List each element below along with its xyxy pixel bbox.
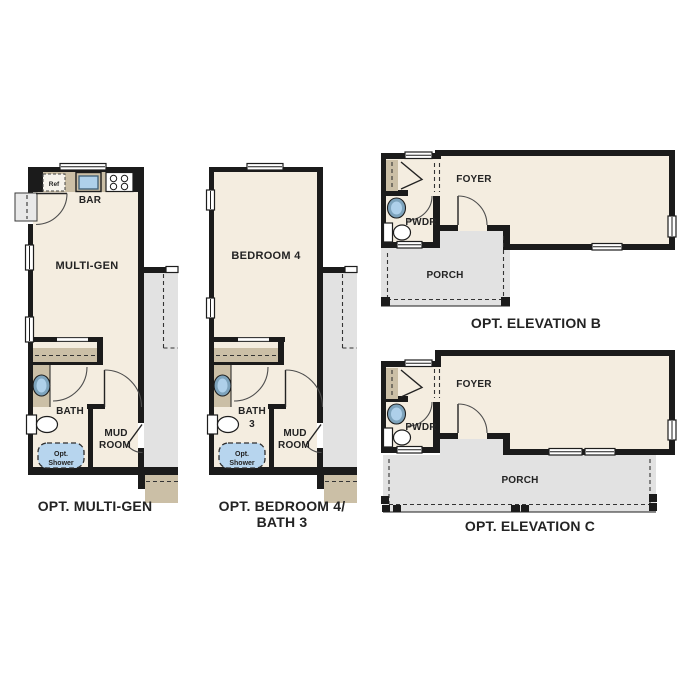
pwdr-label: PWDR [405, 217, 437, 228]
floorplan-canvas: Ref BAR MULTI-GEN BATH MUD ROOM Opt. Sho… [0, 0, 687, 687]
bath3-label: 3 [249, 419, 255, 430]
bar-sink [79, 176, 98, 189]
porch-label: PORCH [426, 270, 463, 281]
toilet-tank [384, 428, 393, 447]
toilet-bowl [37, 417, 58, 433]
plan-opt-multigen: Ref BAR MULTI-GEN BATH MUD ROOM Opt. Sho… [15, 164, 178, 515]
plan-opt-bedroom4: BEDROOM 4 BATH 3 MUD ROOM Opt. Shower OP… [207, 164, 358, 531]
porch-post [382, 505, 390, 512]
toilet-tank [208, 415, 218, 434]
opt-shower-label: Shower [229, 460, 255, 467]
opt-shower-label: Opt. [54, 451, 68, 458]
window [345, 267, 357, 273]
closet-shelf [214, 348, 278, 365]
closet-shelf [33, 348, 97, 365]
floorplan-sheet: Ref BAR MULTI-GEN BATH MUD ROOM Opt. Sho… [0, 0, 687, 687]
toilet-bowl [218, 417, 239, 433]
plan-opt-elevation-c: FOYER PWDR PORCH OPT. ELEVATION C [381, 350, 676, 534]
porch-post [511, 505, 520, 512]
opt-shower-label: Shower [48, 460, 74, 467]
ref-label: Ref [49, 181, 60, 188]
adjacent-area [144, 273, 178, 467]
bath3-label: BATH [238, 406, 266, 417]
porch-step [440, 231, 503, 248]
porch-post [501, 297, 510, 306]
plan-caption: OPT. BEDROOM 4/ [219, 498, 346, 514]
foyer-floor [437, 353, 673, 453]
window [166, 267, 178, 273]
plan-caption: OPT. ELEVATION C [465, 518, 595, 534]
porch-post [649, 503, 657, 511]
plan-caption: OPT. MULTI-GEN [38, 498, 153, 514]
adjacent-area [323, 273, 357, 467]
porch-post [381, 297, 390, 306]
bar-label: BAR [79, 195, 102, 206]
porch-post [393, 505, 401, 512]
porch-label: PORCH [501, 475, 538, 486]
toilet-tank [27, 415, 37, 434]
mudroom-label: ROOM [278, 440, 310, 451]
bath-label: BATH [56, 406, 84, 417]
plan-opt-elevation-b: FOYER PWDR PORCH OPT. ELEVATION B [381, 150, 676, 331]
mudroom-label: ROOM [99, 440, 131, 451]
pwdr-label: PWDR [405, 422, 437, 433]
porch-post [521, 505, 529, 512]
foyer-label: FOYER [456, 174, 492, 185]
plan-caption: BATH 3 [257, 514, 308, 530]
opt-shower-label: Opt. [235, 451, 249, 458]
multigen-room-label: MULTI-GEN [56, 260, 119, 272]
foyer-label: FOYER [456, 379, 492, 390]
bedroom4-room-label: BEDROOM 4 [231, 250, 301, 262]
entry-stoop [15, 193, 37, 221]
porch-post [649, 494, 657, 502]
cooktop [106, 173, 133, 192]
porch-step [440, 439, 503, 455]
toilet-tank [384, 223, 393, 242]
mudroom-label: MUD [283, 428, 306, 439]
plan-caption: OPT. ELEVATION B [471, 315, 601, 331]
porch-post [381, 496, 389, 504]
mudroom-label: MUD [104, 428, 127, 439]
